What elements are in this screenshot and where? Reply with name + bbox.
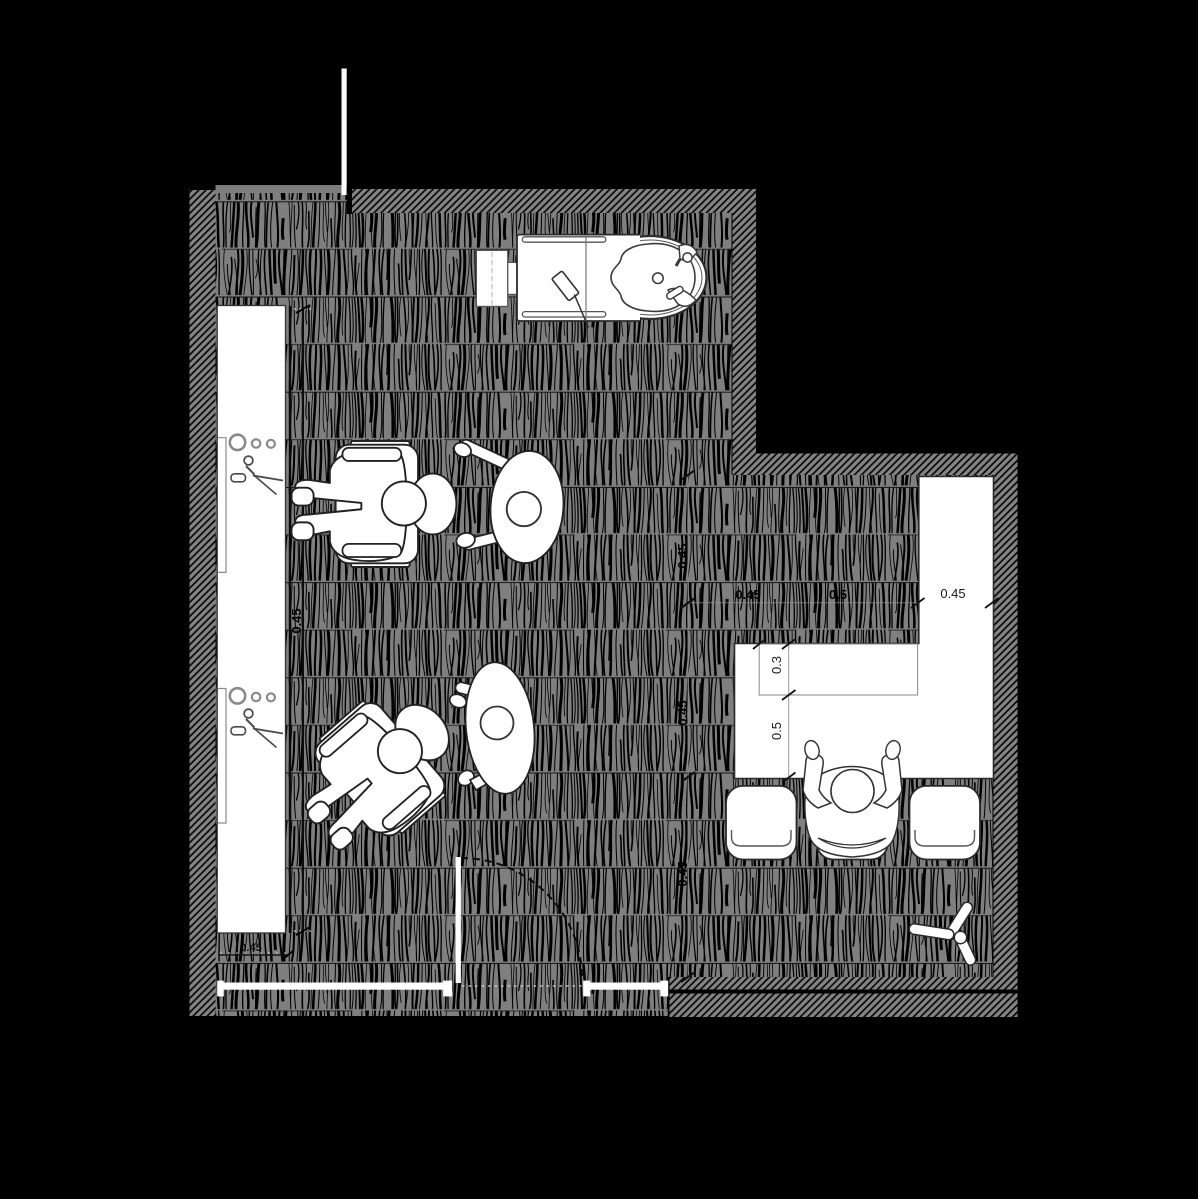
svg-text:0.5: 0.5: [769, 722, 784, 740]
svg-text:0.5: 0.5: [829, 587, 847, 602]
svg-text:0.3: 0.3: [769, 656, 784, 674]
svg-text:0.45: 0.45: [735, 587, 760, 602]
svg-text:0.45: 0.45: [675, 700, 690, 725]
svg-text:0.45: 0.45: [240, 942, 261, 954]
svg-text:0.45: 0.45: [675, 861, 690, 886]
svg-text:0.45: 0.45: [940, 586, 965, 601]
svg-text:0.45: 0.45: [675, 543, 690, 568]
svg-text:0.45: 0.45: [289, 608, 304, 633]
